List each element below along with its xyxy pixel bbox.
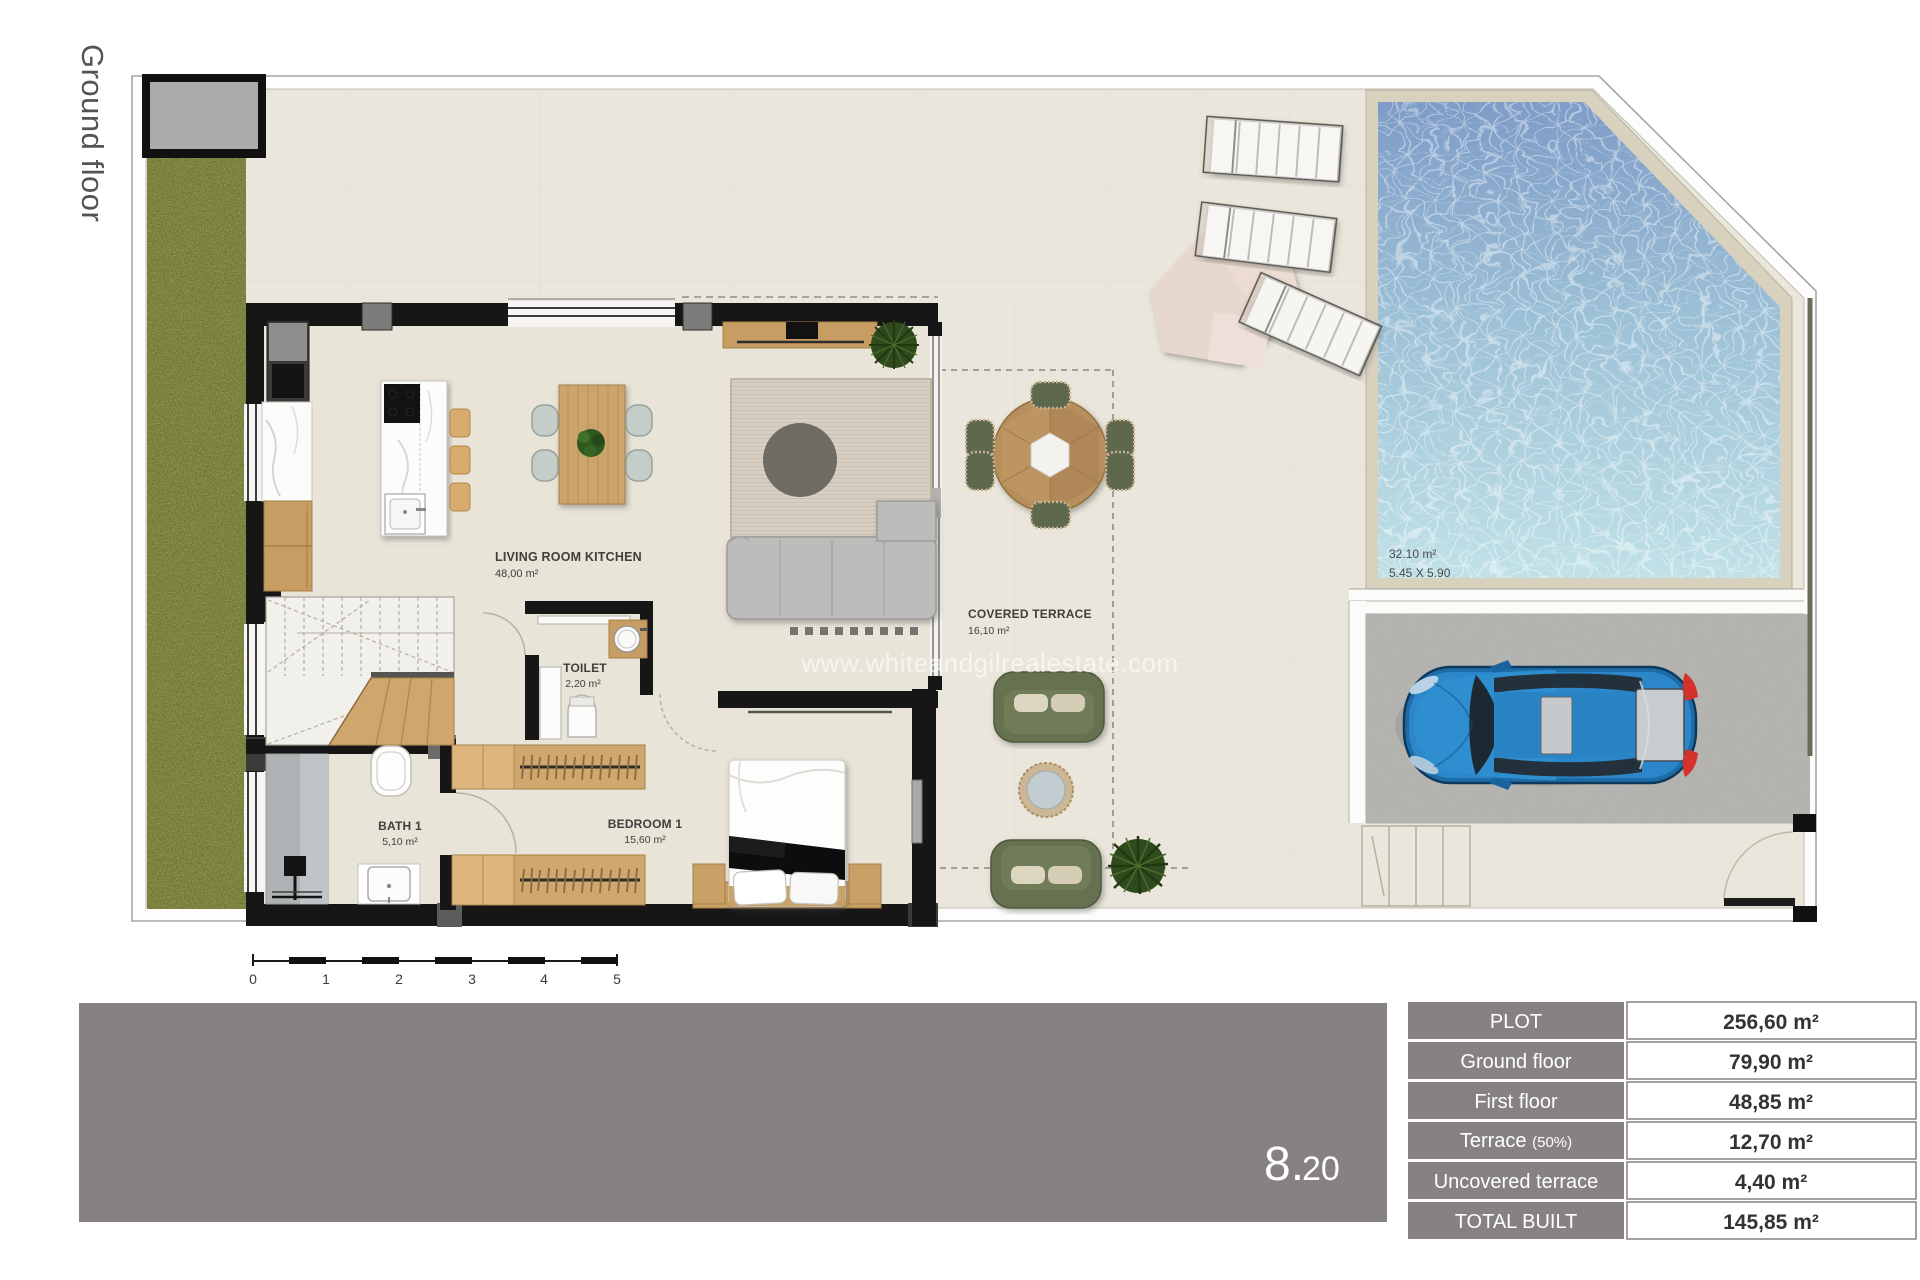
svg-text:48,00 m²: 48,00 m² <box>495 568 539 580</box>
svg-text:First floor: First floor <box>1474 1091 1558 1113</box>
svg-text:2,20 m²: 2,20 m² <box>565 678 601 690</box>
svg-text:15,60 m²: 15,60 m² <box>624 834 666 846</box>
svg-text:20: 20 <box>1302 1150 1340 1188</box>
svg-text:www.whiteandgilrealestate.com: www.whiteandgilrealestate.com <box>800 648 1178 678</box>
svg-text:Terrace (50%): Terrace (50%) <box>1460 1130 1572 1152</box>
svg-text:4: 4 <box>540 971 548 987</box>
svg-text:48,85 m²: 48,85 m² <box>1729 1091 1813 1114</box>
svg-text:PLOT: PLOT <box>1490 1011 1542 1033</box>
svg-text:2: 2 <box>395 971 403 987</box>
svg-text:TOILET: TOILET <box>563 661 607 675</box>
svg-text:3: 3 <box>468 971 476 987</box>
svg-text:16,10 m²: 16,10 m² <box>968 625 1010 637</box>
svg-text:145,85 m²: 145,85 m² <box>1723 1211 1819 1234</box>
svg-text:Ground floor: Ground floor <box>1460 1051 1572 1073</box>
svg-text:BATH 1: BATH 1 <box>378 819 422 833</box>
svg-text:Uncovered terrace: Uncovered terrace <box>1434 1171 1599 1193</box>
svg-text:1: 1 <box>322 971 330 987</box>
svg-text:5: 5 <box>613 971 621 987</box>
svg-text:COVERED TERRACE: COVERED TERRACE <box>968 607 1092 621</box>
svg-text:Ground floor: Ground floor <box>75 44 110 222</box>
svg-text:4,40 m²: 4,40 m² <box>1735 1171 1807 1194</box>
svg-text:5.45 X 5.90: 5.45 X 5.90 <box>1389 566 1451 580</box>
svg-text:32.10 m²: 32.10 m² <box>1389 547 1436 561</box>
svg-text:TOTAL BUILT: TOTAL BUILT <box>1455 1211 1578 1233</box>
svg-text:79,90 m²: 79,90 m² <box>1729 1051 1813 1074</box>
svg-text:LIVING ROOM KITCHEN: LIVING ROOM KITCHEN <box>495 550 642 564</box>
svg-text:0: 0 <box>249 971 257 987</box>
svg-text:8.: 8. <box>1264 1138 1304 1191</box>
svg-text:BEDROOM 1: BEDROOM 1 <box>608 817 683 831</box>
svg-text:5,10 m²: 5,10 m² <box>382 836 418 848</box>
svg-text:12,70 m²: 12,70 m² <box>1729 1131 1813 1154</box>
svg-text:256,60 m²: 256,60 m² <box>1723 1011 1819 1034</box>
